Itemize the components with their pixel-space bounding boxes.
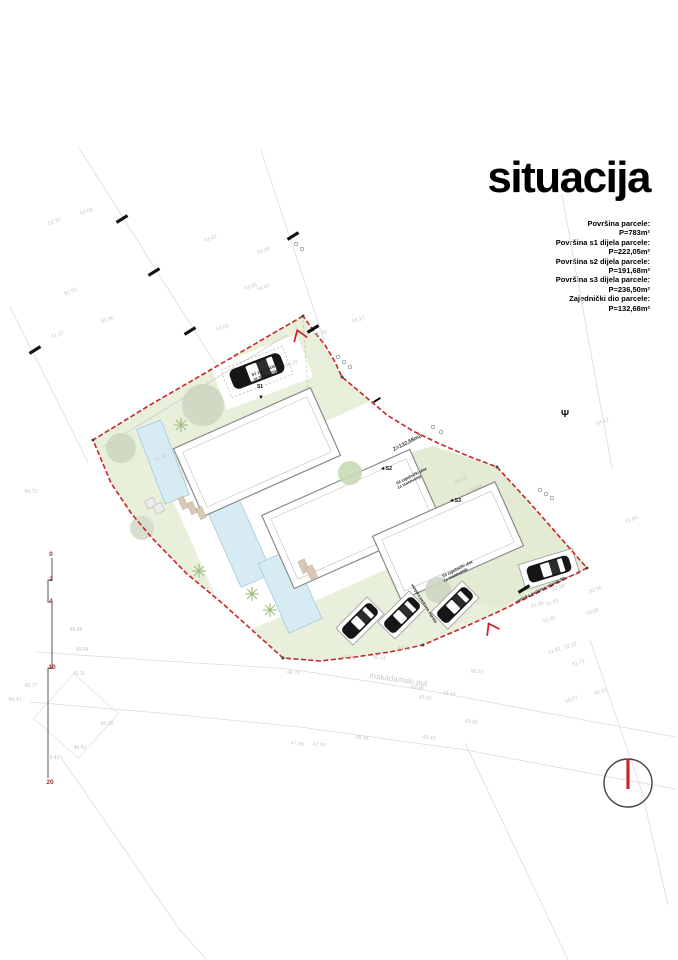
spot-elevation: 52.12 bbox=[564, 641, 578, 651]
spot-elevation: 45.77 bbox=[25, 683, 38, 689]
site-plan-canvas: 0241020 52.0952.2053.4254.3453.6554.4551… bbox=[0, 0, 678, 960]
palm-tree-icon bbox=[245, 587, 259, 601]
plan-label: Ψ bbox=[561, 409, 569, 420]
spot-elevation: 49.74 bbox=[397, 645, 411, 652]
spot-elevation: 51.82 bbox=[548, 646, 562, 656]
spot-elevation: 45.42 bbox=[47, 755, 60, 761]
scale-label: 10 bbox=[48, 664, 56, 671]
spot-elevation: 49.71 bbox=[25, 489, 38, 495]
palm-tree-icon bbox=[263, 603, 277, 617]
spot-elevation: 51.93 bbox=[546, 598, 560, 608]
north-compass bbox=[604, 759, 652, 807]
palm-tree-icon bbox=[174, 418, 188, 432]
spot-elevation: 53.42 bbox=[204, 234, 218, 244]
spot-elevation: 53.03 bbox=[216, 323, 230, 333]
spot-elevation: 48.75 bbox=[286, 669, 300, 676]
spot-elevation: 49.81 bbox=[418, 694, 432, 701]
spot-elevation: 49.44 bbox=[442, 690, 456, 697]
spot-elevation: 46.28 bbox=[101, 721, 114, 727]
spot-elevation: 51.85 bbox=[543, 615, 557, 625]
tree bbox=[182, 384, 224, 426]
spot-elevation: 53.89 bbox=[625, 515, 639, 525]
spot-elevation: 50.43 bbox=[470, 668, 484, 675]
spot-elevation: 49.58 bbox=[464, 718, 478, 725]
spot-elevation: 51.55 bbox=[64, 287, 78, 297]
spot-elevation: 52.09 bbox=[80, 207, 94, 217]
spot-elevation: 47.99 bbox=[312, 741, 326, 748]
spot-elevation: 55.08 bbox=[314, 329, 328, 339]
spot-elevation: 45.41 bbox=[9, 697, 22, 703]
spot-elevation: 48.40 bbox=[422, 734, 436, 741]
plan-label: makadamski put bbox=[369, 671, 429, 688]
scale-label: 4 bbox=[49, 598, 53, 605]
spot-elevation: 48.08 bbox=[76, 647, 89, 653]
spot-elevation: 47.56 bbox=[290, 740, 304, 747]
spot-elevation: 54.45 bbox=[257, 283, 271, 293]
spot-elevation: 53.58 bbox=[586, 607, 600, 617]
spot-elevation: 48.46 bbox=[355, 734, 369, 741]
plan-label: ◄S2 bbox=[380, 466, 392, 472]
spot-elevation: 52.90 bbox=[589, 585, 603, 595]
spot-elevation: 51.95 bbox=[531, 600, 545, 610]
entrance-arrow-icon bbox=[482, 620, 499, 635]
spot-elevation: 51.71 bbox=[572, 658, 586, 668]
tree bbox=[106, 433, 136, 463]
scale-label: 20 bbox=[46, 779, 54, 786]
spot-elevation: 52.20 bbox=[48, 217, 62, 227]
spot-elevation: 54.12 bbox=[596, 417, 610, 427]
plan-label: S1 bbox=[257, 384, 263, 390]
tree bbox=[338, 461, 362, 485]
graphic-scale-bar: 0241020 bbox=[46, 551, 56, 786]
spot-elevation: 50.61 bbox=[594, 687, 608, 697]
scale-label: 0 bbox=[49, 551, 53, 558]
spot-elevation: 54.34 bbox=[257, 246, 271, 256]
spot-elevation: 49.26 bbox=[341, 654, 355, 661]
site-plan-page: situacija Površina parcele: P=783m² Povr… bbox=[0, 0, 678, 960]
plan-label: ◄S3 bbox=[449, 498, 461, 504]
spot-elevation: 48.85 bbox=[70, 627, 83, 633]
spot-elevation: 46.11 bbox=[73, 671, 86, 677]
spot-elevation: 55.17 bbox=[352, 315, 366, 325]
spot-elevation: 50.14 bbox=[372, 654, 386, 661]
palm-tree-icon bbox=[192, 564, 206, 578]
plan-label: ▼ bbox=[258, 395, 264, 401]
spot-elevation: 45.42 bbox=[74, 745, 87, 751]
spot-elevation: 51.22 bbox=[51, 330, 65, 340]
scale-label: 2 bbox=[49, 576, 53, 583]
spot-elevation: 50.07 bbox=[565, 695, 579, 705]
spot-elevation: 52.96 bbox=[101, 315, 115, 325]
